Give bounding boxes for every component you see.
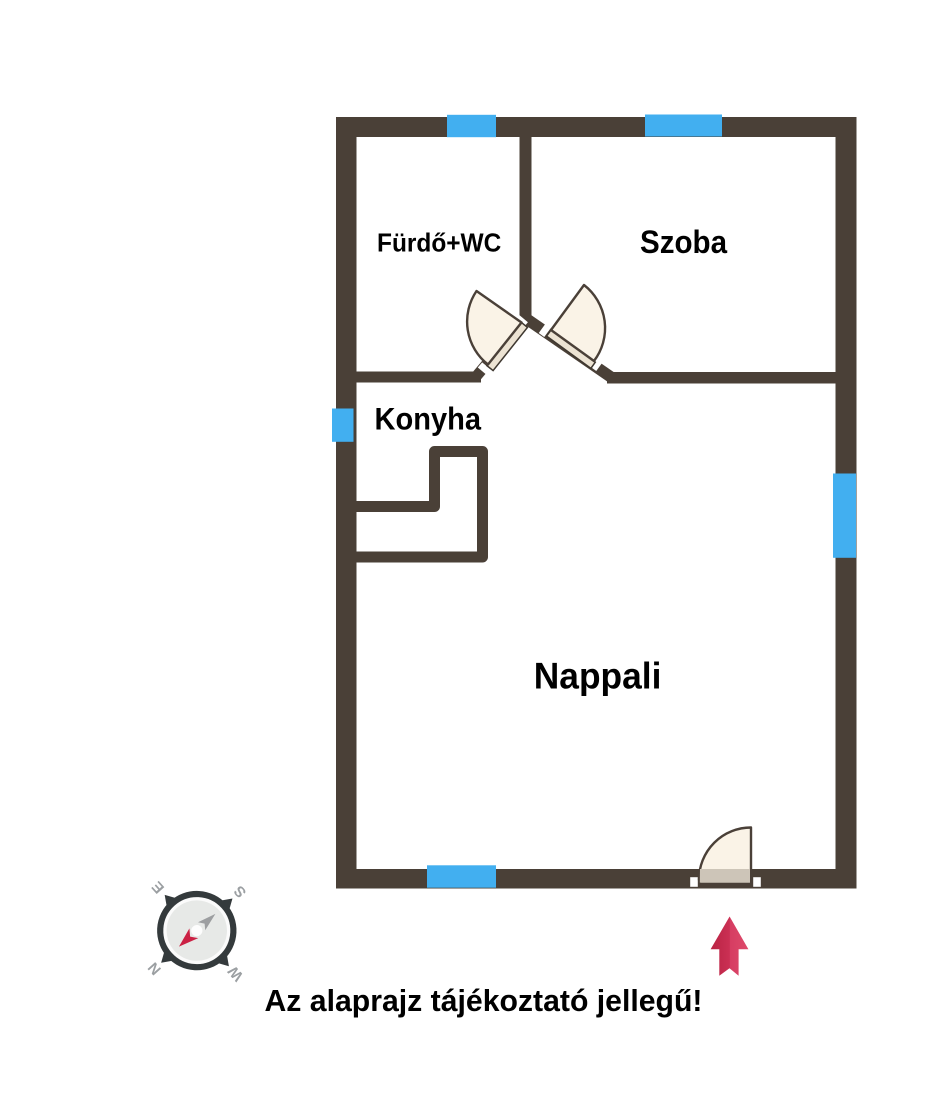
svg-text:Konyha: Konyha (375, 400, 482, 436)
svg-text:Szoba: Szoba (640, 224, 727, 260)
svg-text:Fürdő+WC: Fürdő+WC (377, 230, 501, 258)
svg-text:Nappali: Nappali (534, 655, 662, 696)
svg-text:Az alaprajz tájékoztató jelleg: Az alaprajz tájékoztató jellegű! (265, 983, 703, 1018)
